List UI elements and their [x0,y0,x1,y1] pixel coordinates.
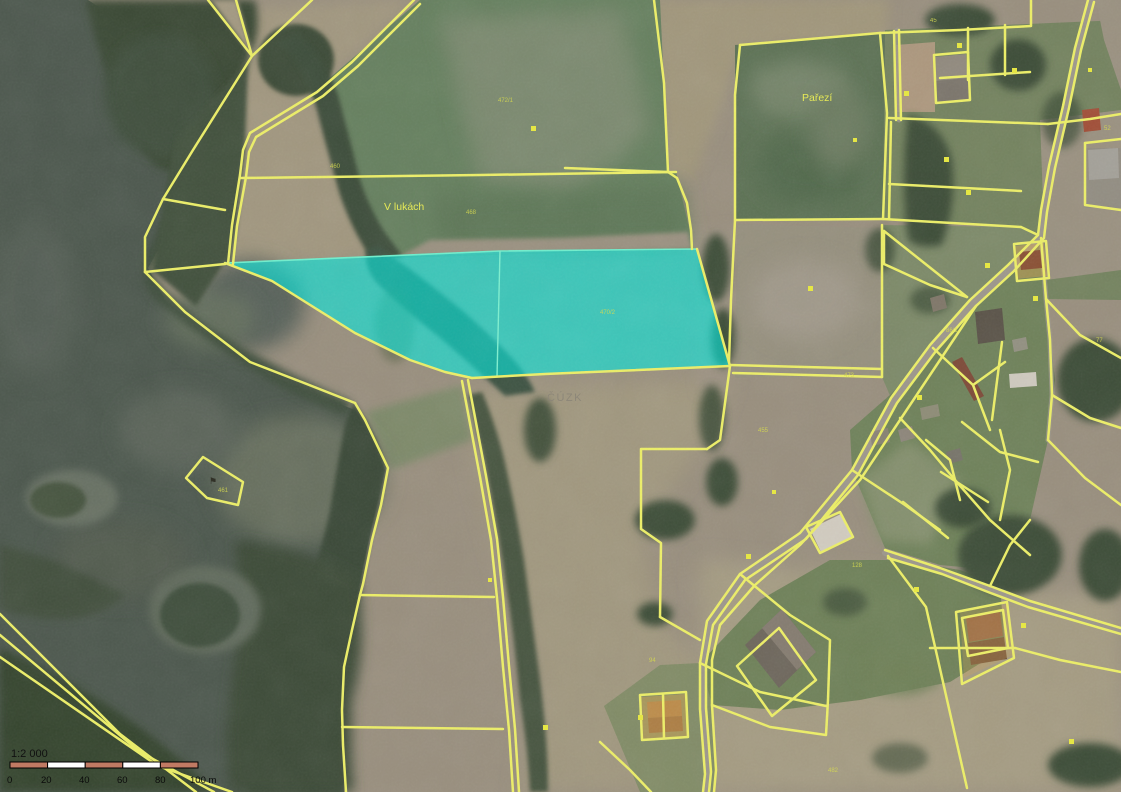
svg-text:20: 20 [41,775,52,786]
svg-text:100 m: 100 m [190,775,216,786]
svg-text:40: 40 [79,775,90,786]
svg-text:60: 60 [117,775,128,786]
svg-text:80: 80 [155,775,166,786]
svg-text:0: 0 [7,775,12,786]
svg-text:1:2 000: 1:2 000 [11,748,48,760]
